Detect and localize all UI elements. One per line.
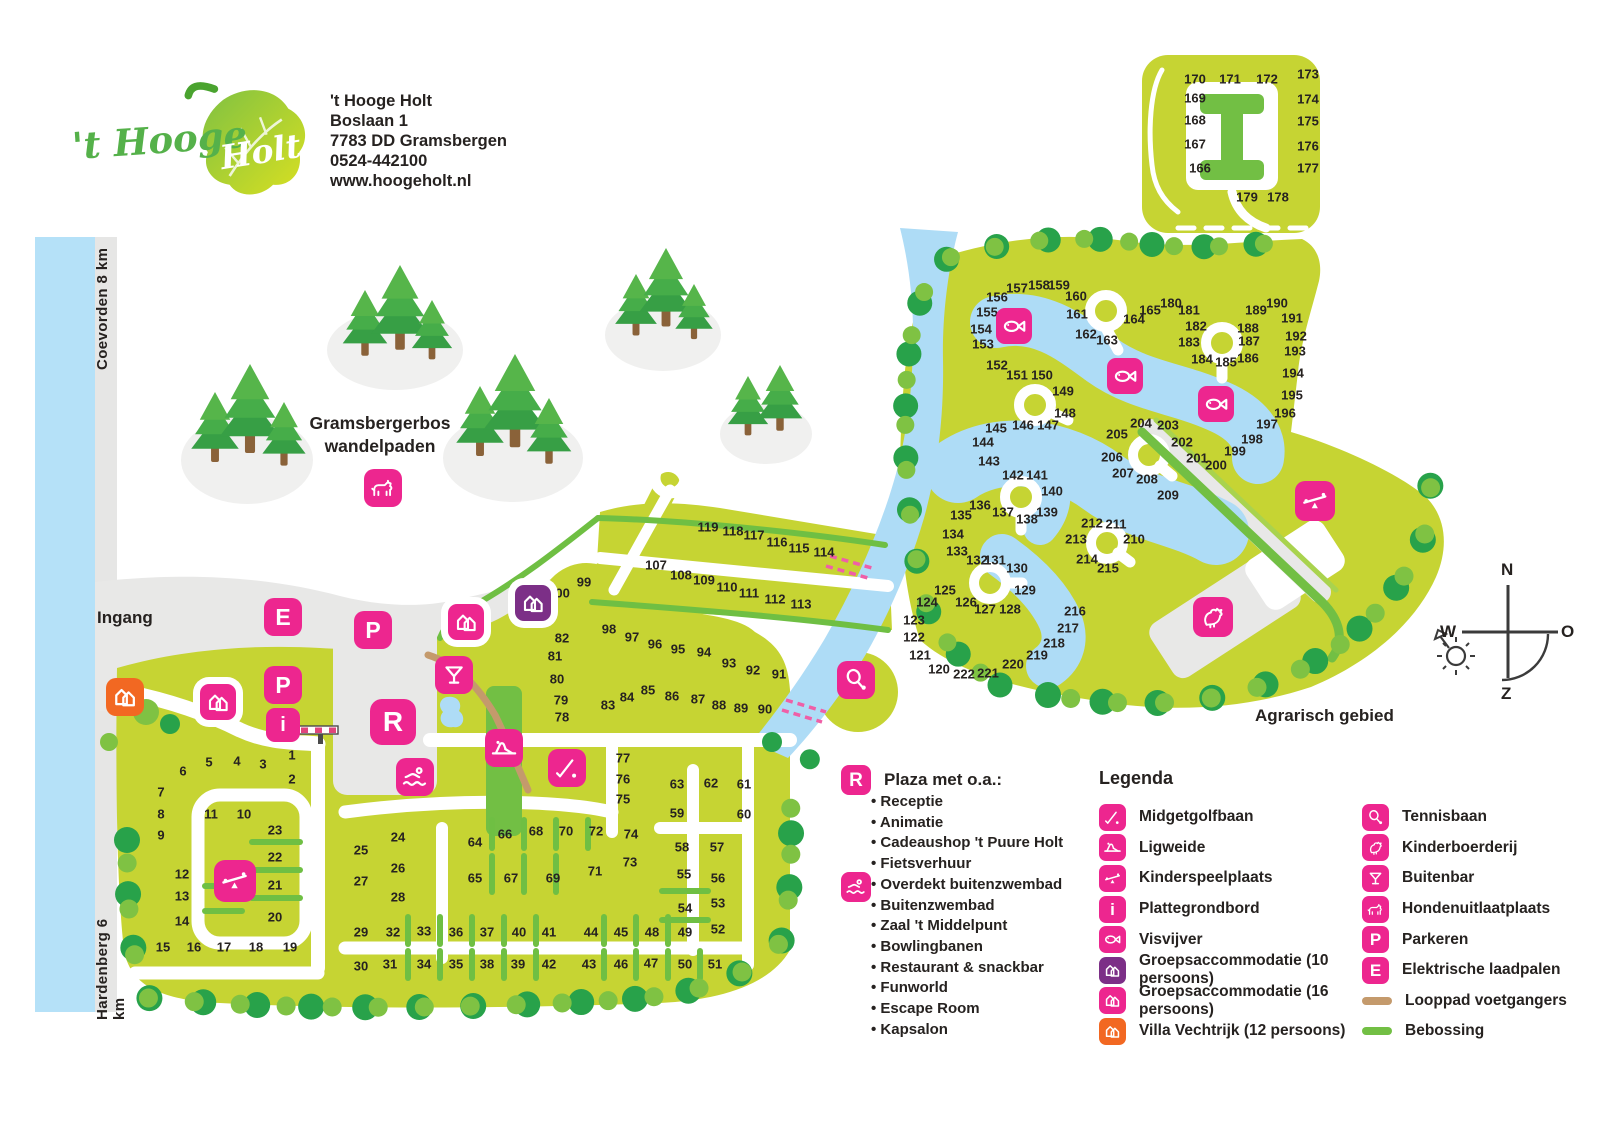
plot-number-161: 161 [1066, 308, 1088, 321]
plot-number-59: 59 [670, 807, 684, 820]
plot-number-82: 82 [555, 632, 569, 645]
plaza-r-icon: R [841, 765, 871, 795]
legend-item-visvijver: Visvijver [1099, 924, 1359, 955]
plot-number-84: 84 [620, 691, 634, 704]
plot-number-188: 188 [1237, 322, 1259, 335]
plot-number-98: 98 [602, 623, 616, 636]
legend-label: Tennisbaan [1402, 808, 1487, 826]
plot-number-94: 94 [697, 646, 711, 659]
plot-number-39: 39 [511, 958, 525, 971]
plot-number-186: 186 [1237, 352, 1259, 365]
plot-number-221: 221 [977, 667, 999, 680]
plot-number-21: 21 [268, 879, 282, 892]
plot-number-10: 10 [237, 808, 251, 821]
plot-number-213: 213 [1065, 533, 1087, 546]
road-label-hardenberg: Hardenberg 6 km [94, 900, 128, 1020]
plot-number-111: 111 [739, 587, 759, 600]
plot-number-79: 79 [554, 694, 568, 707]
plaza-icon: R [370, 699, 416, 745]
plot-number-31: 31 [383, 958, 397, 971]
tennis-icon [1362, 804, 1389, 831]
villa12-icon [106, 678, 144, 716]
plot-number-200: 200 [1205, 459, 1227, 472]
plot-number-128: 128 [999, 603, 1021, 616]
plaza-item: Funworld [871, 978, 1111, 999]
legend-item-ligweide: Ligweide [1099, 833, 1359, 864]
plot-number-65: 65 [468, 872, 482, 885]
plot-number-160: 160 [1065, 290, 1087, 303]
site-logo: 't Hooge Holt [64, 76, 324, 216]
compass-o: O [1561, 622, 1574, 642]
plot-number-75: 75 [616, 793, 630, 806]
plot-number-107: 107 [645, 559, 667, 572]
visvijver-icon [996, 308, 1032, 344]
plot-number-157: 157 [1006, 282, 1028, 295]
legend-column-2: TennisbaanKinderboerderijBuitenbarHonden… [1362, 802, 1600, 1047]
buitenbar-icon [1362, 865, 1389, 892]
plot-number-68: 68 [529, 825, 543, 838]
plot-number-145: 145 [985, 422, 1007, 435]
plot-number-71: 71 [588, 865, 602, 878]
plot-number-116: 116 [767, 536, 788, 549]
plot-number-201: 201 [1186, 452, 1208, 465]
plot-number-80: 80 [550, 673, 564, 686]
plot-number-222: 222 [953, 668, 975, 681]
plot-number-96: 96 [648, 638, 662, 651]
legend-item-tennis: Tennisbaan [1362, 802, 1600, 833]
looppad-icon [1362, 997, 1392, 1005]
plot-number-29: 29 [354, 926, 368, 939]
plot-number-4: 4 [233, 755, 240, 768]
plot-number-61: 61 [737, 778, 751, 791]
plot-number-139: 139 [1036, 506, 1058, 519]
plaza-title: Plaza met o.a.: [884, 770, 1002, 790]
forest-ground [181, 299, 812, 504]
plot-number-90: 90 [758, 703, 772, 716]
plot-number-121: 121 [909, 649, 931, 662]
plot-number-13: 13 [175, 890, 189, 903]
plot-number-118: 118 [723, 525, 744, 538]
plot-number-42: 42 [542, 958, 556, 971]
plot-number-57: 57 [710, 841, 724, 854]
plot-number-156: 156 [986, 291, 1008, 304]
plot-number-154: 154 [970, 323, 992, 336]
plot-number-73: 73 [623, 856, 637, 869]
plot-number-32: 32 [386, 926, 400, 939]
plot-number-99: 99 [577, 576, 591, 589]
plot-number-183: 183 [1178, 336, 1200, 349]
plot-number-114: 114 [814, 546, 835, 559]
legend-item-kinderboerderij: Kinderboerderij [1362, 833, 1600, 864]
plot-number-36: 36 [449, 926, 463, 939]
legend-label: Elektrische laadpalen [1402, 961, 1561, 979]
plot-number-178: 178 [1267, 191, 1289, 204]
legend-label: Looppad voetgangers [1405, 992, 1567, 1010]
plot-number-24: 24 [391, 831, 405, 844]
groeps16-icon [200, 684, 236, 720]
compass-n: N [1501, 560, 1513, 580]
plot-number-209: 209 [1157, 489, 1179, 502]
kinderspeelplaats-icon [1099, 865, 1126, 892]
plot-number-27: 27 [354, 875, 368, 888]
groeps10-icon [515, 585, 551, 621]
plot-number-125: 125 [934, 584, 956, 597]
midgetgolf-icon [548, 749, 586, 787]
legend-label: Groepsaccommodatie (16 persoons) [1139, 983, 1359, 1019]
plot-number-214: 214 [1076, 553, 1098, 566]
legend-item-buitenbar: Buitenbar [1362, 863, 1600, 894]
plot-number-66: 66 [498, 828, 512, 841]
plot-number-172: 172 [1256, 73, 1278, 86]
plot-number-122: 122 [903, 631, 925, 644]
visvijver-icon [1107, 358, 1143, 394]
plot-number-6: 6 [179, 765, 186, 778]
legend-item-looppad: Looppad voetgangers [1362, 986, 1600, 1017]
plot-number-152: 152 [986, 359, 1008, 372]
plot-number-33: 33 [417, 925, 431, 938]
plot-number-193: 193 [1284, 345, 1306, 358]
parkeren-icon: P [264, 666, 302, 704]
visvijver-icon [1099, 926, 1126, 953]
plot-number-146: 146 [1012, 419, 1034, 432]
legend-label: Parkeren [1402, 931, 1468, 949]
plot-number-34: 34 [417, 958, 431, 971]
plaza-item: Fietsverhuur [871, 854, 1111, 875]
plot-number-100: 100 [548, 587, 570, 600]
plot-number-87: 87 [691, 693, 705, 706]
plot-number-8: 8 [157, 808, 164, 821]
plot-number-51: 51 [708, 958, 722, 971]
plot-number-85: 85 [641, 684, 655, 697]
plot-number-194: 194 [1282, 367, 1304, 380]
plot-number-130: 130 [1006, 562, 1028, 575]
plot-number-210: 210 [1123, 533, 1145, 546]
plot-number-15: 15 [156, 941, 170, 954]
legend-item-elektrisch: EElektrische laadpalen [1362, 955, 1600, 986]
plot-number-151: 151 [1006, 369, 1028, 382]
plot-number-166: 166 [1189, 162, 1211, 175]
plot-number-113: 113 [791, 598, 812, 611]
plot-number-9: 9 [157, 829, 164, 842]
plaza-item: Cadeaushop 't Puure Holt [871, 833, 1111, 854]
buitenbar-icon [435, 656, 473, 694]
tennis-icon [837, 661, 875, 699]
legend-item-groeps10: Groepsaccommodatie (10 persoons) [1099, 955, 1359, 986]
legend-label: Buitenbar [1402, 869, 1474, 887]
plot-number-50: 50 [678, 958, 692, 971]
legend-label: Bebossing [1405, 1022, 1484, 1040]
legend-item-hond: Hondenuitlaatplaats [1362, 894, 1600, 925]
plot-number-11: 11 [204, 808, 218, 821]
plot-number-202: 202 [1171, 436, 1193, 449]
plot-number-53: 53 [711, 897, 725, 910]
plot-number-81: 81 [548, 650, 562, 663]
plot-number-72: 72 [589, 825, 603, 838]
groeps16-icon [448, 604, 484, 640]
bebossing-icon [1362, 1027, 1392, 1035]
plot-number-3: 3 [259, 758, 266, 771]
plot-number-207: 207 [1112, 467, 1134, 480]
plot-number-140: 140 [1041, 485, 1063, 498]
plot-number-190: 190 [1266, 297, 1288, 310]
plot-number-69: 69 [546, 872, 560, 885]
address-line: 7783 DD Gramsbergen [330, 131, 507, 151]
plot-number-77: 77 [616, 752, 630, 765]
plot-number-219: 219 [1026, 649, 1048, 662]
plaza-item: Kapsalon [871, 1020, 1111, 1041]
plot-number-141: 141 [1026, 469, 1048, 482]
plaza-list: ReceptieAnimatieCadeaushop 't Puure Holt… [871, 792, 1111, 1040]
plot-number-78: 78 [555, 711, 569, 724]
plot-number-93: 93 [722, 657, 736, 670]
plot-number-30: 30 [354, 960, 368, 973]
legend-label: Kinderspeelplaats [1139, 869, 1273, 887]
address-block: 't Hooge Holt Boslaan 1 7783 DD Gramsber… [330, 91, 507, 191]
indoor-pool-icon [841, 872, 871, 902]
plot-number-95: 95 [671, 643, 685, 656]
entrance-area [95, 577, 575, 750]
plot-number-119: 119 [698, 521, 719, 534]
plot-number-83: 83 [601, 699, 615, 712]
plot-number-205: 205 [1106, 428, 1128, 441]
plot-number-2: 2 [288, 773, 295, 786]
plaza-item: Receptie [871, 792, 1111, 813]
plot-number-64: 64 [468, 836, 482, 849]
plot-number-206: 206 [1101, 451, 1123, 464]
plot-number-169: 169 [1184, 92, 1206, 105]
plot-number-153: 153 [972, 338, 994, 351]
plot-number-185: 185 [1215, 356, 1237, 369]
plot-number-22: 22 [268, 851, 282, 864]
plot-number-25: 25 [354, 844, 368, 857]
visvijver-icon [1198, 386, 1234, 422]
plot-number-129: 129 [1014, 584, 1036, 597]
plot-number-97: 97 [625, 631, 639, 644]
address-line: www.hoogeholt.nl [330, 171, 507, 191]
plot-number-62: 62 [704, 777, 718, 790]
legend-label: Midgetgolfbaan [1139, 808, 1254, 826]
plot-number-143: 143 [978, 455, 1000, 468]
legend-column-1: MidgetgolfbaanLigweideKinderspeelplaatsi… [1099, 802, 1359, 1047]
plot-number-175: 175 [1297, 115, 1319, 128]
plot-number-120: 120 [928, 663, 950, 676]
plot-number-41: 41 [542, 926, 556, 939]
plot-number-163: 163 [1096, 334, 1118, 347]
plot-number-47: 47 [644, 957, 658, 970]
plot-number-144: 144 [972, 436, 994, 449]
plot-number-203: 203 [1157, 419, 1179, 432]
plaza-item: Restaurant & snackbar [871, 958, 1111, 979]
plot-number-91: 91 [772, 668, 786, 681]
address-line: 0524-442100 [330, 151, 507, 171]
plot-number-162: 162 [1075, 328, 1097, 341]
legend-label: Villa Vechtrijk (12 persoons) [1139, 1022, 1345, 1040]
plot-number-177: 177 [1297, 162, 1319, 175]
plot-number-19: 19 [283, 941, 297, 954]
plot-number-181: 181 [1178, 304, 1200, 317]
plot-number-88: 88 [712, 699, 726, 712]
plot-number-192: 192 [1285, 330, 1307, 343]
plot-number-127: 127 [974, 603, 996, 616]
agrarian-label: Agrarisch gebied [1255, 706, 1394, 726]
plot-number-150: 150 [1031, 369, 1053, 382]
legend-item-parkeren: PParkeren [1362, 924, 1600, 955]
plaza-item: Animatie [871, 813, 1111, 834]
legend-label: Visvijver [1139, 931, 1203, 949]
entrance-barrier [296, 726, 338, 744]
plot-number-17: 17 [217, 941, 231, 954]
plot-number-35: 35 [449, 958, 463, 971]
plot-number-137: 137 [992, 506, 1014, 519]
plot-number-117: 117 [744, 529, 765, 542]
small-pool [440, 697, 463, 728]
plot-number-136: 136 [969, 499, 991, 512]
plot-number-76: 76 [616, 773, 630, 786]
ligweide-icon [485, 729, 523, 767]
plot-number-60: 60 [737, 808, 751, 821]
plot-number-5: 5 [205, 756, 212, 769]
parkeren-icon: P [1362, 926, 1389, 953]
plot-number-26: 26 [391, 862, 405, 875]
plot-number-14: 14 [175, 915, 189, 928]
villa12-icon [1099, 1018, 1126, 1045]
plot-number-142: 142 [1002, 469, 1024, 482]
plot-number-149: 149 [1052, 385, 1074, 398]
plot-number-173: 173 [1297, 68, 1319, 81]
plot-number-217: 217 [1057, 622, 1079, 635]
plot-number-54: 54 [678, 902, 692, 915]
midgetgolf-icon [1099, 804, 1126, 831]
plot-number-52: 52 [711, 923, 725, 936]
plot-number-215: 215 [1097, 562, 1119, 575]
plot-number-28: 28 [391, 891, 405, 904]
kinderspeelplaats-icon [214, 860, 256, 902]
plot-number-138: 138 [1016, 513, 1038, 526]
plaza-item: Buitenzwembad [871, 896, 1111, 917]
plot-number-16: 16 [187, 941, 201, 954]
plot-number-110: 110 [717, 581, 738, 594]
legend-label: Ligweide [1139, 839, 1205, 857]
plot-number-58: 58 [675, 841, 689, 854]
plot-number-20: 20 [268, 911, 282, 924]
plot-number-171: 171 [1219, 73, 1241, 86]
groeps10-icon [1099, 957, 1126, 984]
plot-number-155: 155 [976, 306, 998, 319]
plot-number-43: 43 [582, 958, 596, 971]
kinderboerderij-icon [1362, 834, 1389, 861]
plot-number-182: 182 [1185, 320, 1207, 333]
plot-number-108: 108 [670, 569, 692, 582]
plot-number-179: 179 [1236, 191, 1258, 204]
plot-number-174: 174 [1297, 93, 1319, 106]
plot-number-46: 46 [614, 958, 628, 971]
plot-number-216: 216 [1064, 605, 1086, 618]
plot-number-167: 167 [1184, 138, 1206, 151]
entrance-label: Ingang [97, 608, 153, 628]
plot-number-204: 204 [1130, 417, 1152, 430]
compass-z: Z [1501, 684, 1511, 704]
plot-number-109: 109 [693, 574, 715, 587]
plot-number-70: 70 [559, 825, 573, 838]
park-map-page: 't Hooge Holt 't Hooge Holt Boslaan 1 77… [0, 0, 1600, 1131]
plot-number-49: 49 [678, 926, 692, 939]
plot-number-37: 37 [480, 926, 494, 939]
plot-number-199: 199 [1224, 445, 1246, 458]
plot-number-132: 132 [966, 554, 988, 567]
plot-number-40: 40 [512, 926, 526, 939]
ligweide-icon [1099, 834, 1126, 861]
kinderspeelplaats-icon [1295, 481, 1335, 521]
road-water-strip [35, 237, 95, 1012]
plattegrondbord-icon: i [266, 708, 300, 742]
plot-number-23: 23 [268, 824, 282, 837]
legend-item-villa12: Villa Vechtrijk (12 persoons) [1099, 1016, 1359, 1047]
plot-number-74: 74 [624, 828, 638, 841]
legend-item-kinderspeelplaats: Kinderspeelplaats [1099, 863, 1359, 894]
plot-number-112: 112 [765, 593, 786, 606]
plot-number-212: 212 [1081, 517, 1103, 530]
legend-item-bebossing: Bebossing [1362, 1016, 1600, 1047]
legend-item-groeps16: Groepsaccommodatie (16 persoons) [1099, 986, 1359, 1017]
parkeren-icon: P [354, 611, 392, 649]
plot-number-220: 220 [1002, 658, 1024, 671]
plot-number-44: 44 [584, 926, 598, 939]
elektrisch-icon: E [1362, 957, 1389, 984]
plot-number-55: 55 [677, 868, 691, 881]
plot-number-38: 38 [480, 958, 494, 971]
plot-number-67: 67 [504, 872, 518, 885]
plot-number-148: 148 [1054, 407, 1076, 420]
plot-number-195: 195 [1281, 389, 1303, 402]
plaza-item: Escape Room [871, 999, 1111, 1020]
plaza-item: Zaal 't Middelpunt [871, 916, 1111, 937]
legend-label: Plattegrondbord [1139, 900, 1260, 918]
plot-number-134: 134 [942, 528, 964, 541]
plot-number-176: 176 [1297, 140, 1319, 153]
plot-number-187: 187 [1238, 335, 1260, 348]
compass-w: W [1440, 622, 1456, 642]
plot-number-86: 86 [665, 690, 679, 703]
plot-number-12: 12 [175, 868, 189, 881]
plot-number-123: 123 [903, 614, 925, 627]
address-line: 't Hooge Holt [330, 91, 507, 111]
plot-number-189: 189 [1245, 304, 1267, 317]
plot-number-211: 211 [1106, 518, 1127, 531]
zwembad-icon [396, 758, 434, 796]
plot-number-89: 89 [734, 702, 748, 715]
legend-item-plattegrondbord: iPlattegrondbord [1099, 894, 1359, 925]
legend-label: Hondenuitlaatplaats [1402, 900, 1550, 918]
legend-item-midgetgolf: Midgetgolfbaan [1099, 802, 1359, 833]
plot-number-168: 168 [1184, 114, 1206, 127]
park-band [594, 503, 892, 630]
plot-number-208: 208 [1136, 473, 1158, 486]
plot-number-18: 18 [249, 941, 263, 954]
legend-title: Legenda [1099, 768, 1173, 789]
plot-number-45: 45 [614, 926, 628, 939]
kinderboerderij-icon [1193, 597, 1233, 637]
elektrisch-icon: E [264, 598, 302, 636]
plot-number-1: 1 [288, 749, 295, 762]
plot-number-184: 184 [1191, 353, 1213, 366]
plot-number-115: 115 [789, 542, 810, 555]
plot-number-158: 158 [1028, 279, 1050, 292]
road-label-coevorden: Coevorden 8 km [94, 240, 111, 370]
forest-label: Gramsbergerbos wandelpaden [268, 412, 492, 458]
address-line: Boslaan 1 [330, 111, 507, 131]
hond-icon [1362, 896, 1389, 923]
plot-number-63: 63 [670, 778, 684, 791]
